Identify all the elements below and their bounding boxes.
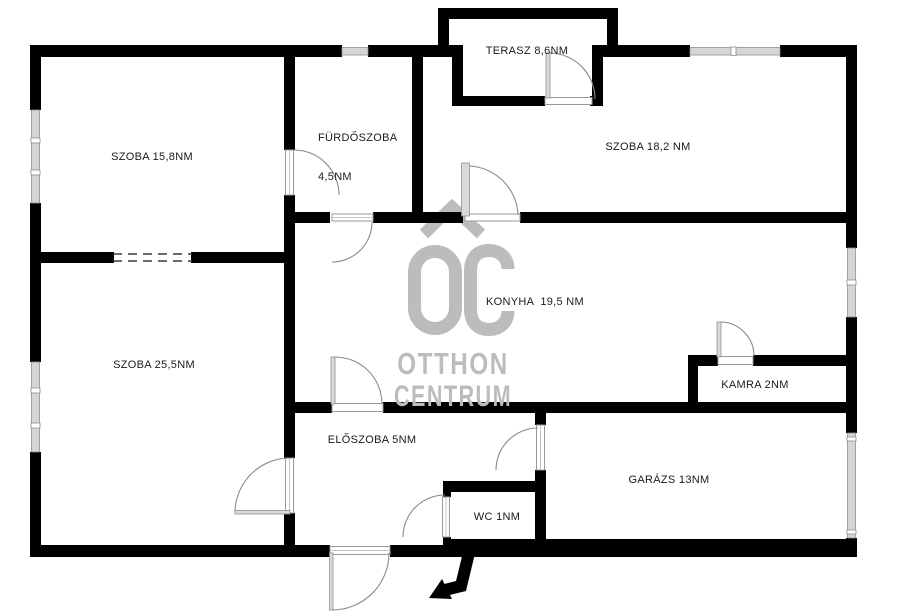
room-label-furdoszoba: FÜRDŐSZOBA 4,5NM (318, 106, 397, 197)
wall (390, 545, 443, 557)
room-label-furdoszoba-line1: FÜRDŐSZOBA (318, 132, 397, 145)
wall-kamra (688, 355, 698, 413)
wall (780, 45, 857, 57)
watermark-text-otthon: OTTHON (397, 346, 508, 382)
door-arc (335, 357, 382, 404)
wall (284, 513, 295, 557)
window-divider (31, 170, 40, 175)
wall (284, 195, 295, 252)
door-leaf (330, 553, 334, 610)
room-label-szoba-15: SZOBA 15,8NM (111, 151, 193, 163)
wall-terrace (607, 8, 618, 55)
wall (592, 45, 690, 57)
room-label-kamra: KAMRA 2NM (721, 379, 789, 391)
wall (284, 263, 295, 458)
door-arc (332, 553, 389, 610)
wall-terrace (438, 8, 618, 19)
window-divider (31, 138, 40, 143)
garage-door-divider (847, 437, 856, 441)
door-sill (545, 98, 592, 105)
door-leaf (717, 322, 721, 357)
watermark-letter-o (415, 252, 456, 329)
door-sill (465, 214, 520, 221)
wall (443, 539, 857, 557)
wall (373, 212, 463, 223)
garage-door (848, 433, 856, 538)
door-arc (496, 428, 538, 470)
room-label-terasz: TERASZ 8,6NM (486, 45, 568, 57)
door-leaf (331, 357, 335, 404)
dashed-opening (113, 252, 192, 263)
garage-door-divider (847, 530, 856, 534)
wall (284, 45, 295, 150)
wall (190, 252, 295, 263)
door-arc (235, 458, 290, 511)
wall (535, 402, 546, 425)
wall-wc (443, 537, 451, 557)
wall-terrace (438, 8, 449, 55)
room-label-szoba-18: SZOBA 18,2 NM (605, 141, 690, 153)
room-label-garazs: GARÁZS 13NM (629, 474, 710, 486)
window-divider (847, 280, 856, 285)
window (32, 110, 40, 203)
window (342, 48, 368, 56)
door-arc (469, 166, 518, 215)
room-label-wc: WC 1NM (474, 511, 520, 523)
wall (284, 402, 332, 413)
room-label-furdoszoba-line2: 4,5NM (318, 171, 397, 184)
window-divider (31, 388, 40, 393)
wall-terrace (452, 96, 545, 106)
door-arc (332, 222, 372, 262)
wall-wc (443, 481, 542, 492)
floorplan-canvas: OTTHON CENTRUM SZOBA 15,8NM FÜRDŐSZOBA 4… (0, 0, 907, 613)
wall (30, 45, 342, 57)
door-arc (721, 322, 754, 356)
door-sill (718, 357, 753, 365)
room-label-konyha: KONYHA 19,5 NM (486, 296, 584, 308)
room-label-eloszoba: ELŐSZOBA 5NM (328, 434, 417, 446)
wall (520, 212, 857, 223)
wall (30, 252, 115, 263)
watermark-letter-c (471, 251, 509, 330)
wall (30, 45, 41, 110)
door-arc (550, 53, 595, 99)
oc-monogram (415, 207, 509, 330)
window (32, 362, 40, 452)
window-divider (31, 423, 40, 428)
wall (846, 317, 857, 433)
wall (30, 452, 41, 557)
door-sill (332, 404, 383, 412)
watermark-text-centrum: CENTRUM (394, 380, 512, 414)
wall (30, 203, 41, 362)
wall-kamra (753, 355, 857, 366)
floorplan-drawing (0, 0, 907, 613)
door-leaf (546, 53, 550, 98)
door-leaf (462, 163, 470, 216)
room-label-szoba-25: SZOBA 25,5NM (113, 359, 195, 371)
door-leaf (235, 511, 290, 515)
window-divider (731, 47, 736, 56)
walls (30, 8, 857, 557)
door-arc (403, 495, 445, 537)
entrance-arrow-shaft (449, 557, 468, 589)
wall (284, 212, 330, 223)
windows (31, 47, 856, 538)
entrance-arrow-icon (429, 557, 468, 599)
wall (412, 45, 423, 222)
